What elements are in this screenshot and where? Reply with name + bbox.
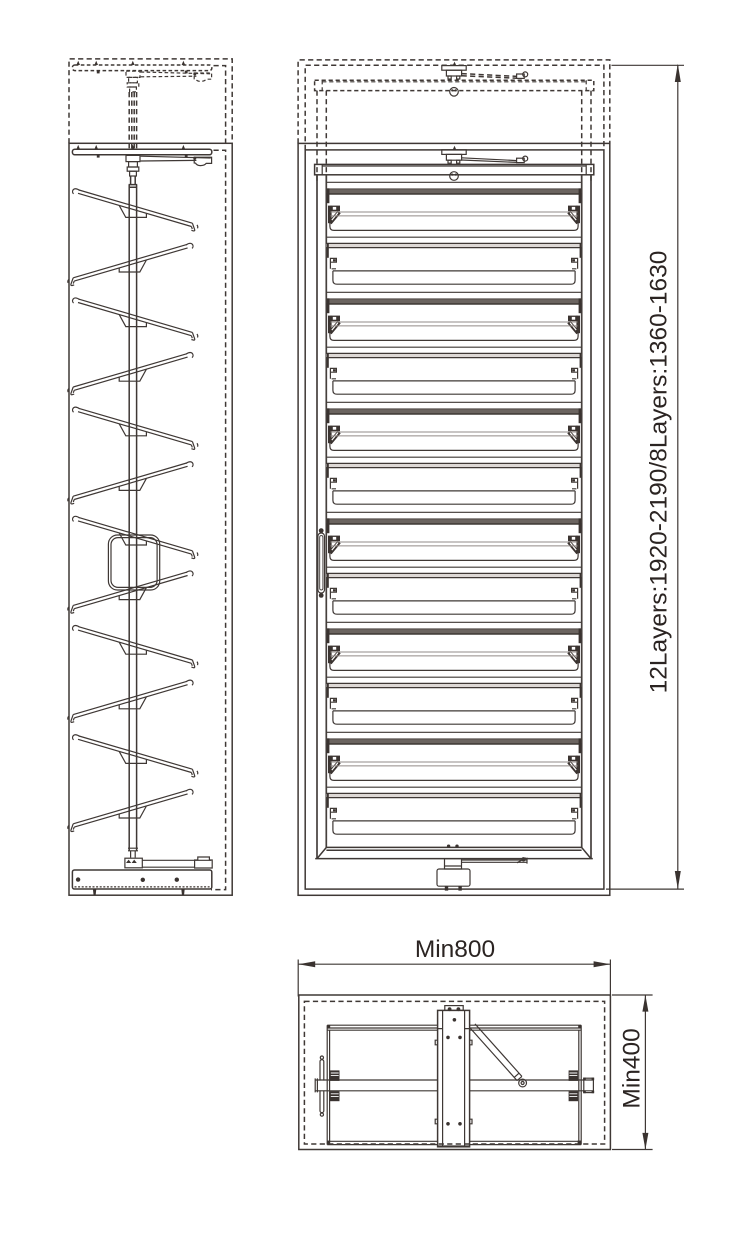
- svg-text:12Layers:1920-2190/8Layers:136: 12Layers:1920-2190/8Layers:1360-1630: [645, 251, 672, 694]
- svg-text:Min800: Min800: [415, 936, 495, 963]
- svg-text:Min400: Min400: [618, 1028, 645, 1108]
